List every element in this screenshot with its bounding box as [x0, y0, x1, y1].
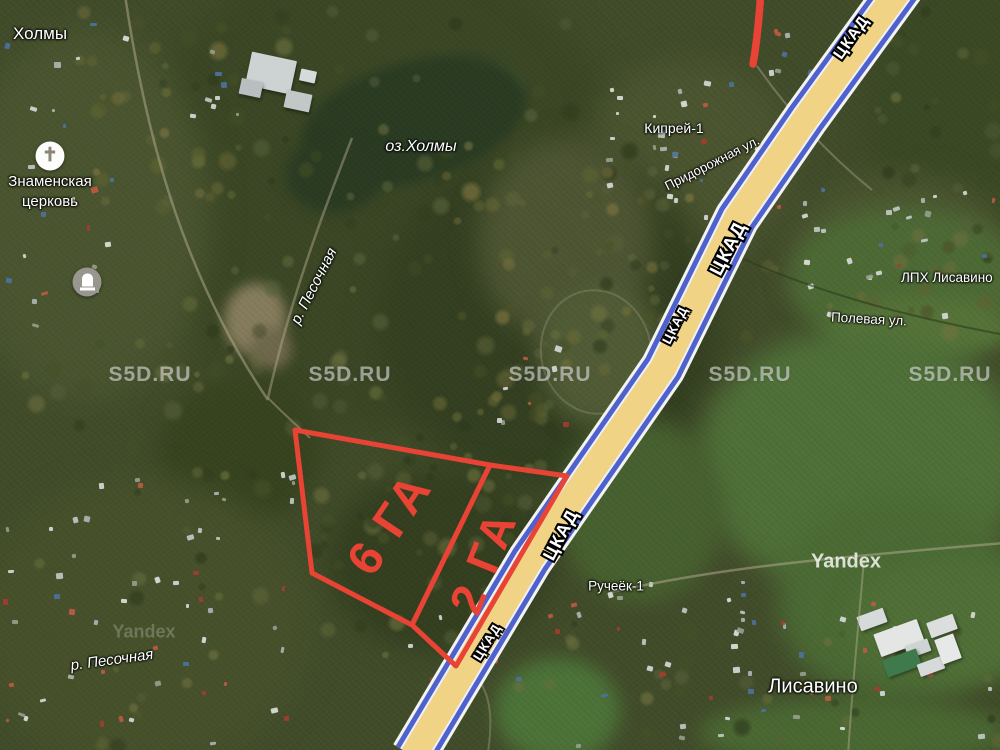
tree-canopy: [597, 328, 609, 341]
tree-canopy: [92, 167, 101, 177]
tree-canopy: [368, 554, 378, 564]
tree-canopy: [123, 438, 142, 459]
building-dot: [100, 720, 104, 726]
tree-canopy: [598, 275, 615, 293]
tree-canopy: [951, 182, 965, 195]
tree-canopy: [526, 390, 544, 410]
tree-canopy: [377, 122, 390, 137]
large-building: [239, 78, 264, 98]
building-dot: [516, 676, 522, 680]
building-dot: [907, 275, 913, 281]
tree-canopy: [515, 493, 535, 512]
large-building: [882, 648, 922, 677]
building-dot: [664, 662, 671, 669]
tree-canopy: [892, 251, 909, 271]
tree-canopy: [590, 338, 610, 355]
tree-canopy: [518, 198, 527, 208]
tree-canopy: [376, 531, 391, 545]
building-dot: [868, 275, 872, 279]
building-dot: [236, 113, 239, 116]
building-dot: [708, 696, 712, 700]
building-dot: [282, 586, 286, 592]
tree-canopy: [501, 492, 515, 508]
building-dot: [292, 480, 296, 485]
tree-canopy: [895, 29, 907, 41]
tree-canopy: [614, 157, 632, 179]
tree-canopy: [849, 707, 860, 718]
building-dot: [804, 260, 811, 265]
building-dot: [555, 629, 560, 634]
tree-canopy: [145, 133, 157, 147]
building-dot: [503, 387, 509, 391]
building-dot: [134, 478, 140, 483]
tree-canopy: [403, 454, 418, 466]
tree-canopy: [128, 702, 138, 714]
tree-canopy: [526, 554, 535, 562]
large-building: [856, 608, 887, 632]
tree-canopy: [891, 312, 903, 325]
building-dot: [56, 572, 63, 578]
tree-canopy: [227, 105, 247, 129]
tree-canopy: [100, 90, 121, 107]
map-canvas[interactable]: 6 ГА 2 ГА ЦКАД ЦКАД ЦКАД ЦКАД ЦКАД ✝ Зна…: [0, 0, 1000, 750]
building-dot: [23, 254, 27, 259]
tree-canopy: [436, 141, 457, 160]
building-dot: [610, 88, 615, 93]
tree-canopy: [108, 736, 128, 750]
tree-canopy: [716, 271, 726, 279]
building-dot: [280, 472, 285, 478]
building-dot: [52, 108, 56, 112]
building-dot: [748, 689, 754, 694]
tree-canopy: [521, 317, 536, 335]
building-dot: [825, 695, 831, 700]
large-building: [926, 614, 958, 639]
tree-canopy: [214, 21, 229, 35]
tree-canopy: [711, 638, 726, 651]
building-dot: [774, 68, 781, 74]
building-dot: [846, 258, 853, 265]
tree-canopy: [110, 90, 126, 108]
tree-canopy: [251, 584, 270, 606]
tree-canopy: [234, 144, 243, 151]
tree-canopy: [507, 150, 522, 164]
tree-canopy: [230, 265, 241, 276]
tree-canopy: [594, 248, 604, 257]
tree-canopy: [970, 47, 992, 70]
building-dot: [40, 698, 46, 703]
tree-canopy: [251, 137, 272, 159]
building-dot: [190, 113, 197, 117]
tree-canopy: [319, 534, 328, 541]
building-dot: [551, 366, 557, 373]
building-dot: [672, 152, 678, 157]
tree-canopy: [472, 199, 486, 212]
building-dot: [672, 152, 678, 159]
tree-canopy: [884, 35, 894, 43]
large-building: [873, 619, 924, 657]
tree-canopy: [940, 239, 957, 254]
building-dot: [674, 198, 679, 203]
tree-canopy: [126, 709, 144, 729]
building-dot: [748, 160, 755, 167]
building-dot: [647, 665, 653, 671]
tree-canopy: [180, 295, 200, 313]
tree-canopy: [226, 70, 241, 88]
tree-canopy: [74, 54, 86, 67]
building-dot: [211, 103, 217, 109]
tree-canopy: [560, 357, 573, 371]
building-dot: [761, 708, 767, 712]
building-dot: [699, 179, 703, 183]
tree-canopy: [309, 149, 323, 164]
tree-canopy: [703, 266, 723, 282]
tree-canopy: [446, 16, 465, 32]
tree-canopy: [431, 395, 449, 411]
tree-canopy: [990, 731, 1000, 750]
tree-canopy: [677, 622, 698, 645]
building-dot: [733, 667, 740, 673]
building-dot: [201, 637, 206, 643]
tree-canopy: [501, 257, 516, 272]
monument-glyph: [82, 274, 93, 287]
tree-canopy: [500, 531, 517, 547]
building-dot: [729, 82, 734, 88]
tree-canopy: [131, 16, 146, 29]
tree-canopy: [100, 195, 111, 207]
building-dot: [122, 35, 129, 41]
tree-canopy: [770, 264, 780, 274]
tree-canopy: [564, 632, 576, 646]
building-dot: [58, 201, 62, 206]
tree-canopy: [127, 588, 146, 608]
tree-canopy: [194, 187, 206, 200]
tree-canopy: [951, 229, 970, 249]
building-dot: [680, 101, 687, 108]
tree-canopy: [402, 455, 411, 466]
building-dot: [210, 49, 216, 54]
tree-canopy: [440, 171, 453, 181]
large-building: [245, 52, 297, 95]
tree-canopy: [570, 620, 579, 627]
tree-canopy: [981, 251, 994, 264]
building-dot: [874, 687, 881, 692]
tree-canopy: [319, 540, 330, 550]
building-dot: [776, 205, 781, 210]
building-dot: [616, 95, 623, 100]
building-dot: [616, 626, 620, 631]
building-dot: [468, 668, 473, 672]
tree-canopy: [530, 83, 549, 100]
tree-canopy: [511, 362, 526, 378]
tree-canopy: [591, 192, 607, 206]
building-dot: [554, 345, 562, 352]
tree-canopy: [429, 462, 438, 473]
tree-canopy: [320, 513, 337, 529]
tree-canopy: [431, 195, 451, 217]
tree-canopy: [345, 192, 356, 202]
tree-canopy: [899, 240, 919, 260]
tree-canopy: [178, 28, 199, 50]
tree-canopy: [193, 371, 201, 379]
tree-canopy: [600, 182, 614, 196]
building-dot: [23, 716, 28, 722]
building-dot: [71, 553, 76, 558]
tree-canopy: [381, 179, 394, 193]
building-dot: [992, 198, 996, 203]
building-dot: [893, 206, 901, 212]
building-dot: [76, 57, 80, 61]
tree-canopy: [910, 227, 927, 244]
tree-canopy: [540, 340, 550, 348]
building-dot: [215, 96, 220, 100]
tree-canopy: [874, 105, 883, 115]
tree-canopy: [491, 158, 507, 171]
building-dot: [814, 227, 820, 232]
building-dot: [937, 270, 943, 276]
tree-canopy: [33, 557, 46, 570]
tree-canopy: [415, 153, 435, 174]
tree-canopy: [597, 362, 611, 376]
building-dot: [5, 527, 9, 532]
tree-canopy: [939, 322, 959, 343]
monument-icon[interactable]: [73, 268, 102, 297]
tree-canopy: [659, 125, 675, 140]
tree-canopy: [198, 582, 206, 592]
tree-canopy: [160, 194, 176, 208]
building-dot: [5, 719, 9, 723]
tree-canopy: [43, 360, 63, 377]
building-dot: [866, 274, 873, 279]
tree-canopy: [923, 104, 931, 111]
building-dot: [799, 651, 804, 657]
tree-canopy: [774, 732, 787, 745]
tree-canopy: [982, 674, 994, 684]
large-building: [934, 633, 962, 664]
tree-canopy: [543, 398, 555, 411]
tree-canopy: [856, 290, 867, 301]
building-dot: [897, 263, 902, 267]
building-dot: [820, 188, 825, 193]
tree-canopy: [899, 171, 919, 189]
tree-canopy: [239, 537, 255, 550]
building-dot: [289, 498, 294, 504]
tree-canopy: [504, 303, 516, 317]
building-dot: [857, 315, 863, 321]
tree-canopy: [356, 471, 367, 480]
tree-canopy: [349, 285, 358, 294]
tree-canopy: [603, 239, 616, 252]
tree-canopy: [82, 727, 101, 750]
tree-canopy: [658, 260, 671, 271]
tree-canopy: [494, 308, 511, 326]
tree-canopy: [500, 514, 511, 527]
building-dot: [210, 742, 216, 746]
tree-canopy: [362, 515, 383, 537]
tree-canopy: [246, 467, 259, 481]
tree-canopy: [538, 285, 557, 301]
tree-canopy: [148, 156, 167, 176]
tree-canopy: [249, 362, 267, 376]
tree-canopy: [432, 152, 450, 168]
building-dot: [183, 662, 189, 666]
tree-canopy: [646, 165, 659, 178]
tree-canopy: [96, 99, 108, 112]
tree-canopy: [368, 384, 384, 401]
building-dot: [702, 241, 708, 247]
building-dot: [704, 215, 709, 220]
building-dot: [941, 313, 948, 319]
tree-canopy: [599, 316, 617, 336]
building-dot: [642, 639, 647, 645]
tree-canopy: [376, 392, 388, 403]
tree-canopy: [522, 108, 540, 123]
tree-canopy: [906, 692, 914, 699]
tree-canopy: [332, 348, 351, 364]
building-dot: [54, 594, 61, 599]
building-dot: [214, 492, 219, 495]
building-dot: [129, 718, 135, 723]
building-dot: [215, 72, 222, 76]
building-dot: [667, 194, 673, 200]
building-dot: [734, 629, 740, 636]
building-dot: [821, 229, 826, 233]
building-dot: [971, 611, 976, 617]
tree-canopy: [415, 548, 423, 556]
tree-canopy: [373, 522, 384, 531]
tree-canopy: [760, 258, 776, 274]
tree-canopy: [93, 735, 110, 750]
tree-canopy: [542, 676, 558, 693]
tree-canopy: [888, 31, 907, 50]
tree-canopy: [456, 311, 468, 321]
tree-canopy: [263, 212, 272, 222]
tree-canopy: [629, 257, 642, 272]
tree-canopy: [405, 260, 424, 276]
building-dot: [718, 734, 724, 738]
large-building: [917, 656, 946, 677]
building-dot: [570, 602, 577, 607]
building-dot: [69, 609, 76, 616]
building-dot: [186, 604, 189, 608]
tree-canopy: [946, 630, 964, 648]
tree-canopy: [159, 126, 170, 139]
tree-canopy: [678, 308, 686, 315]
tree-canopy: [643, 185, 651, 193]
tree-canopy: [600, 164, 619, 184]
building-dot: [154, 576, 161, 583]
tree-canopy: [158, 78, 168, 89]
tree-canopy: [737, 674, 756, 691]
tree-canopy: [451, 411, 463, 424]
tree-canopy: [162, 398, 183, 423]
tree-canopy: [605, 232, 626, 255]
building-dot: [154, 680, 161, 687]
building-dot: [921, 238, 928, 243]
tree-canopy: [171, 361, 191, 383]
tree-canopy: [204, 192, 217, 203]
building-dot: [491, 657, 497, 663]
tree-canopy: [495, 367, 516, 391]
tree-canopy: [626, 253, 638, 263]
large-building: [905, 638, 932, 658]
tree-canopy: [639, 307, 659, 325]
tree-canopy: [72, 418, 87, 433]
tree-canopy: [652, 146, 663, 157]
tree-canopy: [838, 630, 846, 638]
building-dot: [222, 498, 227, 502]
building-dot: [809, 691, 813, 695]
building-dot: [9, 682, 14, 687]
building-dot: [186, 534, 194, 541]
building-dot: [273, 625, 278, 630]
tree-canopy: [356, 511, 364, 520]
building-dot: [978, 734, 985, 739]
building-dot: [72, 197, 75, 201]
tree-canopy: [190, 153, 207, 169]
tree-canopy: [533, 410, 550, 427]
tree-canopy: [328, 352, 349, 373]
tree-canopy: [128, 659, 140, 669]
tree-canopy: [36, 629, 58, 649]
tree-canopy: [75, 375, 94, 397]
building-dot: [677, 88, 682, 94]
tree-canopy: [171, 510, 182, 519]
tree-canopy: [89, 735, 99, 744]
building-dot: [725, 716, 730, 720]
building-dot: [29, 106, 37, 112]
building-dot: [949, 644, 953, 650]
tree-canopy: [499, 402, 519, 423]
tree-canopy: [205, 73, 223, 87]
building-dot: [781, 621, 786, 625]
tree-canopy: [312, 485, 330, 506]
building-dot: [665, 165, 670, 172]
building-dot: [862, 648, 867, 653]
tree-canopy: [281, 254, 295, 269]
building-dot: [737, 219, 742, 225]
building-dot: [870, 602, 876, 607]
building-dot: [659, 671, 667, 677]
tree-canopy: [919, 5, 932, 18]
tree-canopy: [217, 149, 239, 173]
building-dot: [610, 137, 615, 140]
building-dot: [801, 94, 808, 100]
tree-canopy: [497, 247, 516, 266]
tree-canopy: [415, 432, 425, 443]
tree-canopy: [560, 100, 581, 123]
tree-canopy: [522, 327, 531, 336]
tree-canopy: [666, 342, 676, 351]
tree-canopy: [148, 40, 162, 56]
tree-canopy: [182, 525, 192, 536]
tree-canopy: [192, 380, 206, 394]
tree-canopy: [132, 571, 148, 587]
cross-glyph: ✝: [42, 146, 58, 165]
building-dot: [679, 723, 686, 729]
tree-canopy: [160, 345, 177, 363]
church-icon[interactable]: ✝: [36, 142, 65, 171]
tree-canopy: [85, 55, 99, 68]
building-dot: [652, 115, 656, 119]
building-dot: [981, 253, 987, 257]
building-dot: [867, 619, 874, 624]
building-dot: [193, 571, 199, 575]
tree-canopy: [452, 217, 462, 225]
building-dot: [739, 611, 745, 615]
tree-canopy: [421, 529, 440, 548]
tree-canopy: [527, 405, 545, 423]
